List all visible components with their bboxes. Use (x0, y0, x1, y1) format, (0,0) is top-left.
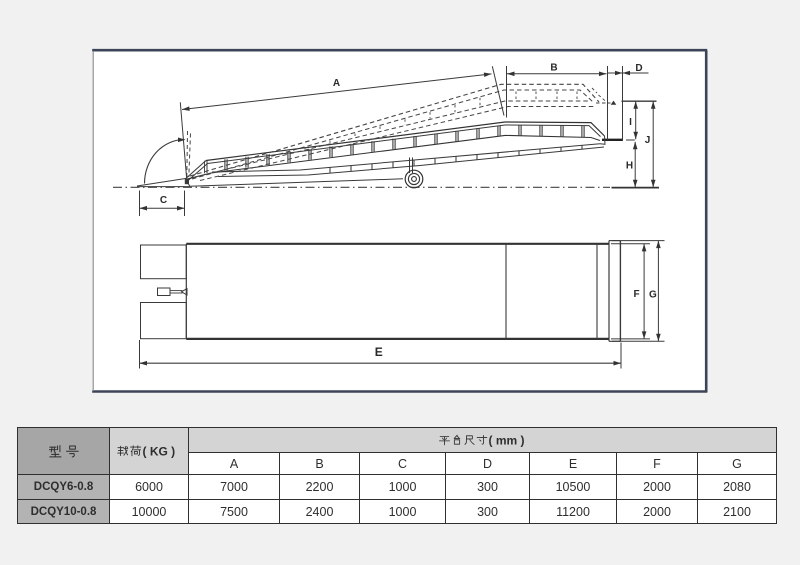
svg-text:I: I (629, 117, 632, 128)
svg-text:G: G (649, 289, 657, 300)
svg-text:B: B (550, 63, 557, 74)
svg-text:E: E (375, 345, 383, 359)
svg-text:( KG ): ( KG ) (143, 445, 176, 459)
svg-text:D: D (635, 63, 642, 74)
svg-text:( mm ): ( mm ) (488, 434, 524, 448)
svg-text:H: H (626, 161, 633, 172)
svg-text:C: C (160, 195, 167, 206)
svg-text:J: J (645, 135, 651, 146)
svg-text:F: F (633, 289, 639, 300)
svg-text:A: A (333, 78, 340, 89)
